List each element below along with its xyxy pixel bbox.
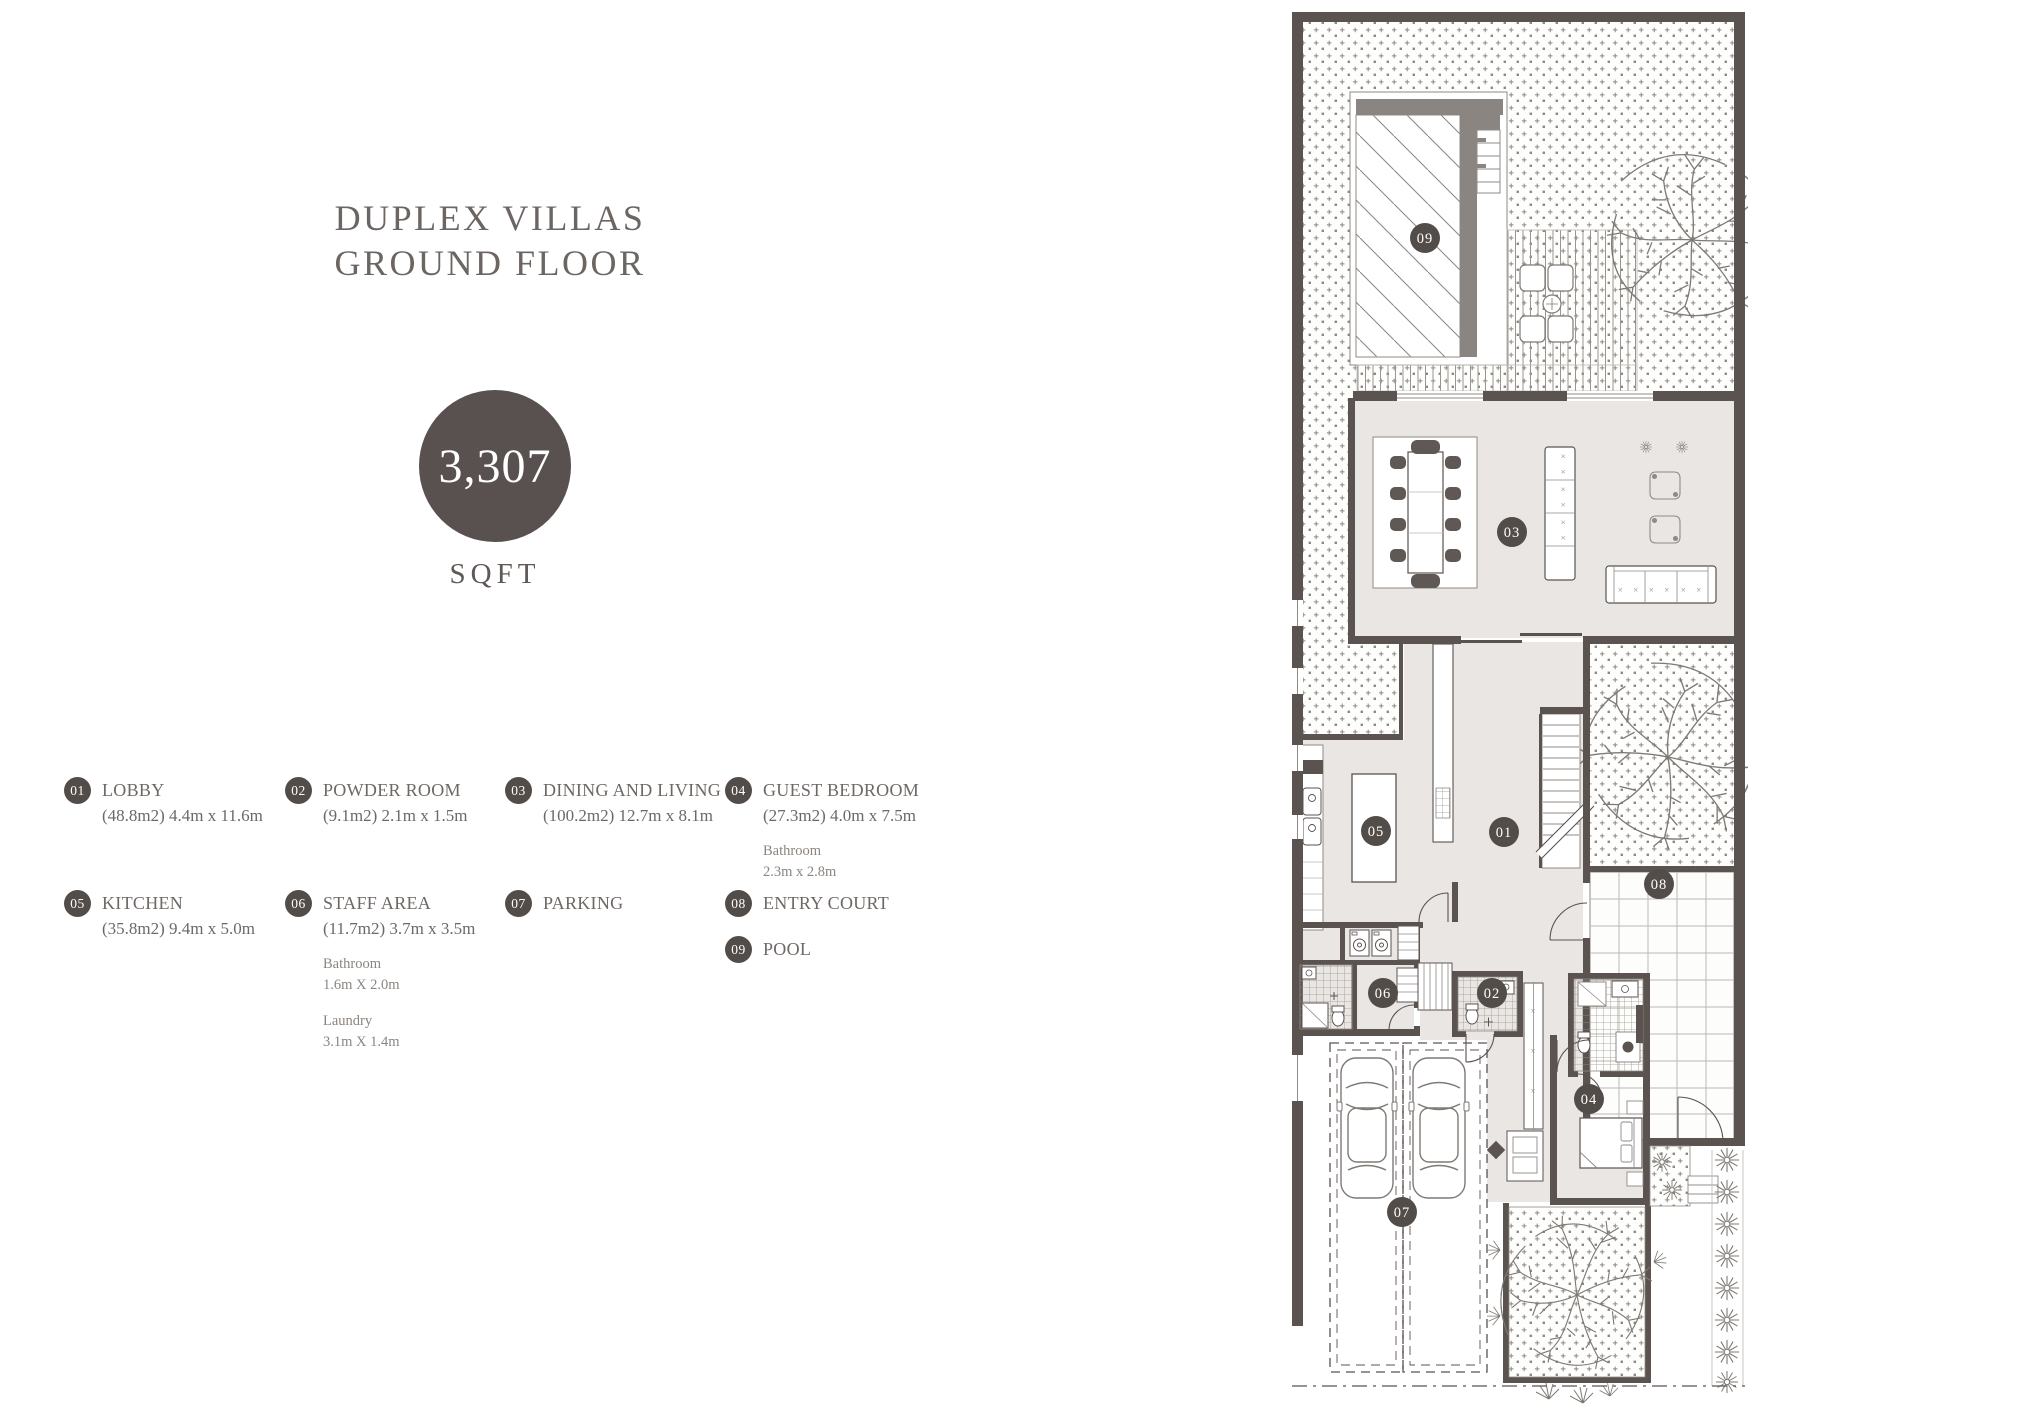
legend-label: ENTRY COURT xyxy=(763,890,889,917)
legend-label: KITCHEN xyxy=(102,890,255,917)
legend-label: GUEST BEDROOM xyxy=(763,777,919,804)
plan-badge-06: 06 xyxy=(1368,978,1398,1008)
svg-text:04: 04 xyxy=(1581,1092,1598,1108)
legend-extra: Laundry 3.1m X 1.4m xyxy=(323,1011,475,1053)
dining-set xyxy=(1373,437,1477,588)
page-title: DUPLEX VILLAS GROUND FLOOR xyxy=(250,196,730,287)
planter xyxy=(1650,1146,1690,1206)
car xyxy=(1409,1058,1469,1198)
legend-item-dining-living: 03 DINING AND LIVING (100.2m2) 12.7m x 8… xyxy=(505,777,721,826)
svg-text:03: 03 xyxy=(1504,525,1521,541)
legend-item-entry-court: 08 ENTRY COURT xyxy=(725,890,889,917)
svg-text:×: × xyxy=(1530,1086,1535,1096)
legend-badge-09: 09 xyxy=(725,936,752,963)
svg-text:× ×: × × xyxy=(1649,585,1673,595)
legend-label: DINING AND LIVING xyxy=(543,777,721,804)
area-circle: 3,307 xyxy=(419,390,571,542)
svg-text:× ×: × × xyxy=(1618,585,1642,595)
floor-plan: × × × × × × × × × × × × xyxy=(1292,10,1748,1416)
plan-badge-08: 08 xyxy=(1644,869,1674,899)
legend-badge-04: 04 xyxy=(725,777,752,804)
legend-badge-03: 03 xyxy=(505,777,532,804)
plan-badge-07: 07 xyxy=(1387,1197,1417,1227)
legend-item-kitchen: 05 KITCHEN (35.8m2) 9.4m x 5.0m xyxy=(64,890,255,939)
svg-text:08: 08 xyxy=(1651,877,1668,893)
pool-steps xyxy=(1477,130,1500,193)
legend-label: STAFF AREA xyxy=(323,890,475,917)
legend-dims: (100.2m2) 12.7m x 8.1m xyxy=(543,806,721,826)
page-title-line2: GROUND FLOOR xyxy=(250,241,730,286)
page: DUPLEX VILLAS GROUND FLOOR 3,307 SQFT 01… xyxy=(0,0,2032,1426)
legend-badge-02: 02 xyxy=(285,777,312,804)
legend-label: LOBBY xyxy=(102,777,263,804)
legend-item-staff-area: 06 STAFF AREA (11.7m2) 3.7m x 3.5m Bathr… xyxy=(285,890,475,1053)
legend-badge-07: 07 xyxy=(505,890,532,917)
svg-text:02: 02 xyxy=(1484,986,1501,1002)
plan-badge-04: 04 xyxy=(1574,1084,1604,1114)
area-value: 3,307 xyxy=(439,439,552,494)
plan-badge-03: 03 xyxy=(1497,517,1527,547)
svg-text:× ×: × × xyxy=(1558,454,1568,478)
plan-badge-05: 05 xyxy=(1361,816,1391,846)
entry-steps xyxy=(1688,1176,1718,1203)
svg-text:×: × xyxy=(1530,1006,1535,1016)
legend-dims: (35.8m2) 9.4m x 5.0m xyxy=(102,919,255,939)
svg-text:06: 06 xyxy=(1375,986,1392,1002)
legend-dims: (11.7m2) 3.7m x 3.5m xyxy=(323,919,475,939)
svg-text:×: × xyxy=(1530,1046,1535,1056)
legend-badge-05: 05 xyxy=(64,890,91,917)
area-unit: SQFT xyxy=(319,558,671,591)
legend-badge-08: 08 xyxy=(725,890,752,917)
svg-text:01: 01 xyxy=(1496,825,1513,841)
legend-dims: (48.8m2) 4.4m x 11.6m xyxy=(102,806,263,826)
legend-badge-06: 06 xyxy=(285,890,312,917)
car xyxy=(1337,1058,1397,1198)
svg-text:05: 05 xyxy=(1368,824,1385,840)
legend-label: POWDER ROOM xyxy=(323,777,468,804)
bottom-garden xyxy=(1483,1195,1668,1403)
svg-text:× ×: × × xyxy=(1558,487,1568,511)
bathrooms xyxy=(1300,965,1643,1071)
svg-text:07: 07 xyxy=(1394,1205,1411,1221)
plan-badge-09: 09 xyxy=(1410,223,1440,253)
legend-extra: Bathroom 1.6m X 2.0m xyxy=(323,954,475,996)
svg-text:× ×: × × xyxy=(1558,520,1568,544)
svg-text:× ×: × × xyxy=(1681,585,1705,595)
page-title-line1: DUPLEX VILLAS xyxy=(250,196,730,241)
legend-badge-01: 01 xyxy=(64,777,91,804)
legend-dims: (9.1m2) 2.1m x 1.5m xyxy=(323,806,468,826)
legend-item-lobby: 01 LOBBY (48.8m2) 4.4m x 11.6m xyxy=(64,777,263,826)
legend-label: POOL xyxy=(763,936,811,963)
plan-badge-02: 02 xyxy=(1477,978,1507,1008)
plan-badge-01: 01 xyxy=(1489,817,1519,847)
legend-extra: Bathroom 2.3m x 2.8m xyxy=(763,841,919,883)
legend-item-guest-bedroom: 04 GUEST BEDROOM (27.3m2) 4.0m x 7.5m Ba… xyxy=(725,777,919,883)
legend-dims: (27.3m2) 4.0m x 7.5m xyxy=(763,806,919,826)
legend-item-parking: 07 PARKING xyxy=(505,890,623,917)
legend-item-pool: 09 POOL xyxy=(725,936,811,963)
svg-text:09: 09 xyxy=(1417,231,1434,247)
legend-label: PARKING xyxy=(543,890,623,917)
legend-item-powder-room: 02 POWDER ROOM (9.1m2) 2.1m x 1.5m xyxy=(285,777,468,826)
